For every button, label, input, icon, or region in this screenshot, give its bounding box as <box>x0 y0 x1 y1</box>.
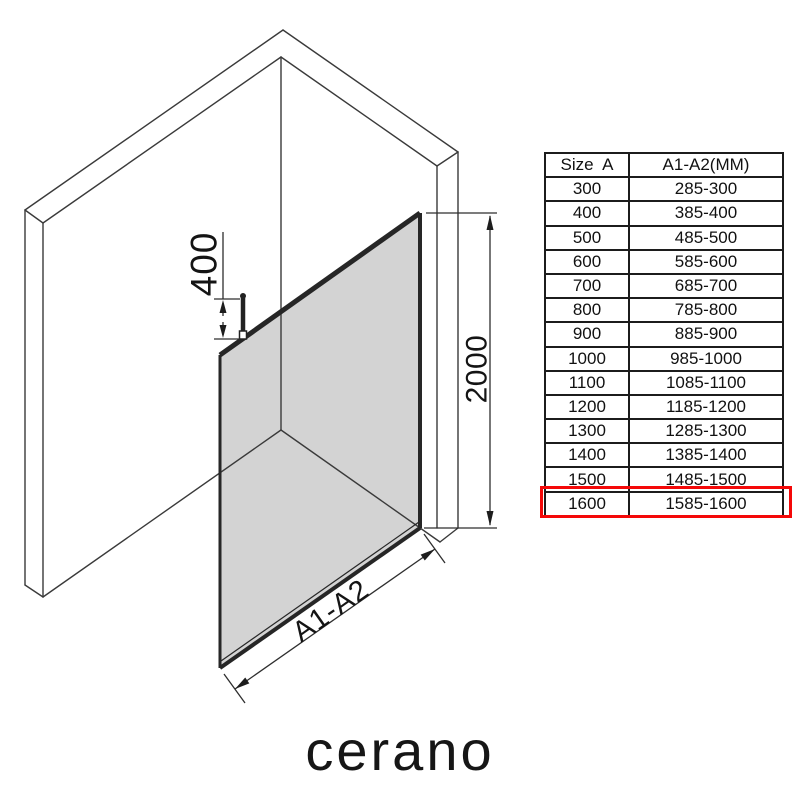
range-cell: 885-900 <box>629 322 783 346</box>
page: 400 2000 A1-A2 <box>0 0 800 800</box>
size-cell: 800 <box>545 298 629 322</box>
range-cell: 1185-1200 <box>629 395 783 419</box>
size-cell: 1400 <box>545 443 629 467</box>
size-cell: 900 <box>545 322 629 346</box>
range-cell: 785-800 <box>629 298 783 322</box>
bracket-foot <box>240 331 247 339</box>
range-cell: 385-400 <box>629 201 783 225</box>
table-row: 700 685-700 <box>545 274 783 298</box>
dimension-400: 400 <box>184 232 241 339</box>
table-row: 1400 1385-1400 <box>545 443 783 467</box>
table-row: 900 885-900 <box>545 322 783 346</box>
highlight-box <box>540 486 792 518</box>
range-cell: 985-1000 <box>629 347 783 371</box>
installation-diagram: 400 2000 A1-A2 <box>0 0 540 720</box>
header-size: Size A <box>545 153 629 177</box>
size-cell: 1300 <box>545 419 629 443</box>
range-cell: 485-500 <box>629 226 783 250</box>
size-cell: 300 <box>545 177 629 201</box>
table-row: 500 485-500 <box>545 226 783 250</box>
size-cell: 700 <box>545 274 629 298</box>
dim-400-label: 400 <box>184 232 225 297</box>
table-row: 1000 985-1000 <box>545 347 783 371</box>
table-row: 1200 1185-1200 <box>545 395 783 419</box>
range-cell: 285-300 <box>629 177 783 201</box>
range-cell: 585-600 <box>629 250 783 274</box>
size-cell: 1100 <box>545 371 629 395</box>
header-range: A1-A2(MM) <box>629 153 783 177</box>
support-bar <box>240 293 247 339</box>
size-cell: 500 <box>545 226 629 250</box>
size-cell: 1000 <box>545 347 629 371</box>
table-row: 400 385-400 <box>545 201 783 225</box>
table-row: 1100 1085-1100 <box>545 371 783 395</box>
table-row: 1300 1285-1300 <box>545 419 783 443</box>
size-table: Size A A1-A2(MM) 300 285-300 400 385-400… <box>544 152 784 517</box>
dim-2000-label: 2000 <box>461 335 494 404</box>
range-cell: 1385-1400 <box>629 443 783 467</box>
dimension-2000: 2000 <box>424 213 497 528</box>
range-cell: 685-700 <box>629 274 783 298</box>
size-cell: 600 <box>545 250 629 274</box>
bracket-cap <box>240 293 246 299</box>
table-row: 300 285-300 <box>545 177 783 201</box>
range-cell: 1285-1300 <box>629 419 783 443</box>
size-cell: 1200 <box>545 395 629 419</box>
brand-logo: cerano <box>0 718 800 783</box>
table-header-row: Size A A1-A2(MM) <box>545 153 783 177</box>
table-row: 600 585-600 <box>545 250 783 274</box>
size-cell: 400 <box>545 201 629 225</box>
table-row: 800 785-800 <box>545 298 783 322</box>
range-cell: 1085-1100 <box>629 371 783 395</box>
